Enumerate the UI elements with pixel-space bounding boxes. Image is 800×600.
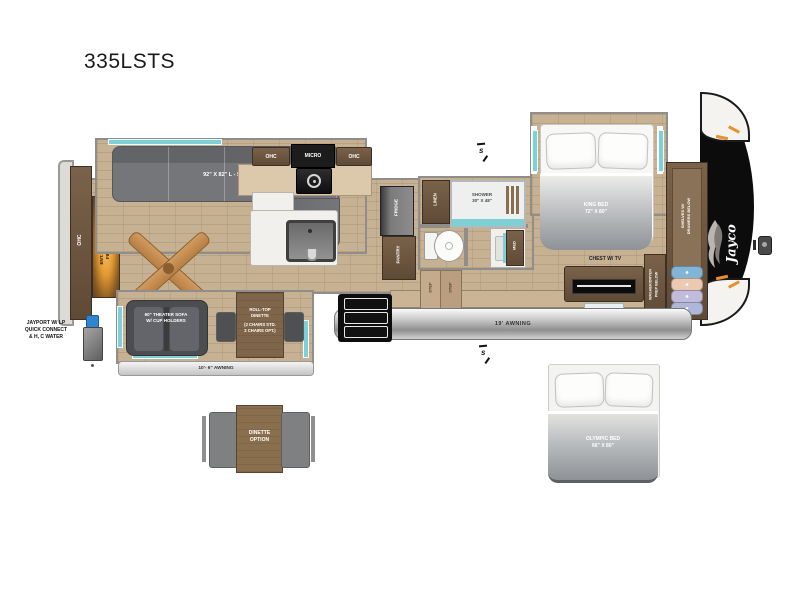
step-label-1: STEP [428,271,433,305]
floorplan-title: 335LSTS [84,50,175,74]
dinette-opt-rail-left [202,416,206,462]
king-line2: 72" X 80" [540,209,652,216]
shower-slat-1 [516,186,519,214]
speaker-symbol-top: s [479,146,483,155]
fridge-label: FRIDGE [394,186,399,230]
tv-icon [572,279,636,294]
dinette-opt-line1: DINETTE [237,430,282,437]
rear-ohc-label: OHC [77,210,83,270]
dinette-opt-bench-left [209,412,238,468]
king-line1: KING BED [540,202,652,209]
dinette-chair-left [216,312,236,342]
dinette-opt-rail-right [311,416,315,462]
floorplan-canvas: 335LSTS OHC ENT. CENTER W/ FIREPLACE 92"… [0,0,800,600]
table-hub [163,263,174,274]
burner-icon [307,174,321,188]
med-label: MED [512,232,517,260]
shelves-label: SHELVES W/ DRAWERS BELOW [680,172,692,260]
jayport-label: JAYPORT W/ LP QUICK CONNECT & H, C WATER [10,320,82,341]
hitch-icon [758,236,772,255]
shelves-line2: DRAWERS BELOW [686,172,692,260]
burner-center [313,180,316,183]
front-cap-top [700,92,750,142]
living-slide-window [108,139,222,145]
sink-icon [286,220,336,262]
toilet-icon [434,230,464,262]
pantry-label: PANTRY [396,233,401,277]
micro-label: MICRO [305,153,322,159]
dinette-chair-right [284,312,304,342]
step-label-2: STEP [448,271,453,305]
microwave: MICRO [291,144,335,168]
faucet-icon [306,249,318,261]
shower-line2: 30" X 48" [454,198,510,204]
ohc-left-label: OHC [265,154,276,160]
dinette-opt-bench-right [281,412,310,468]
king-pillow-left [545,132,596,170]
theater-sofa-label: 60" THEATER SOFA W/ CUP HOLDERS [120,312,212,324]
kitchen-ohc-left: OHC [252,147,290,166]
toilet-room-wall [464,228,468,266]
olympic-pillow-left [554,372,604,408]
dinette-option-label: DINETTE OPTION [237,430,282,444]
theater-line2: W/ CUP HOLDERS [120,318,212,324]
king-pillow-right [597,132,648,170]
bed-window-right [658,130,664,172]
jayport-line2: QUICK CONNECT [10,327,82,334]
olympic-blanket: OLYMPIC BED 66" X 80" [548,411,658,483]
entry-step-1 [344,298,388,310]
rolltop-dinette-table: ROLL-TOP DINETTE (2 CHAIRS STD. 2 CHAIRS… [236,292,284,358]
rolltop-line4: 2 CHAIRS OPT.) [237,328,283,334]
hitch-post [753,240,756,250]
chest-label: CHEST W/ TV [558,256,652,262]
olympic-line2: 66" X 80" [548,443,658,450]
dinette-option-table: DINETTE OPTION [236,405,283,473]
bed-window-left [532,130,538,172]
chest-with-tv [564,266,644,302]
hitch-pin [762,242,767,247]
toilet-flush [445,242,453,250]
entry-step-2 [344,312,388,324]
speaker-symbol-bottom: s [481,348,485,357]
shower-slat-2 [511,186,514,214]
shower-threshold [452,219,524,226]
entry-step-3 [344,326,388,338]
tv-screen-glint [577,285,631,287]
shower-label: SHOWER 30" X 48" [454,192,510,204]
jayco-logo: Jayco [725,212,740,276]
shower: SHOWER 30" X 48" [450,180,526,228]
dinette-opt-line2: OPTION [237,437,282,444]
jayport-drain [91,364,94,367]
drain-icon [308,229,312,233]
king-bed: KING BED 72" X 80" [540,124,654,248]
entry-steps [338,294,392,342]
cooktop-icon [296,168,332,194]
jayport-box [83,327,103,361]
olympic-bed: OLYMPIC BED 66" X 80" [548,364,660,478]
main-awning-label: 19' AWNING [495,321,531,327]
jayport-line1: JAYPORT W/ LP [10,320,82,327]
rolltop-label: ROLL-TOP DINETTE (2 CHAIRS STD. 2 CHAIRS… [237,307,283,334]
jayport-line3: & H, C WATER [10,334,82,341]
olympic-bed-label: OLYMPIC BED 66" X 80" [548,436,658,450]
king-blanket: KING BED 72" X 80" [540,173,652,250]
king-bed-label: KING BED 72" X 80" [540,202,652,216]
small-awning: 10'- 6" AWNING [118,361,314,376]
olympic-pillow-right [604,372,653,408]
olympic-line1: OLYMPIC BED [548,436,658,443]
linen-label: LINEN [433,180,438,220]
kitchen-ohc-right: OHC [336,147,372,166]
theater-sofa [126,300,208,356]
small-awning-label: 10'- 6" AWNING [198,366,233,371]
rolltop-line2: DINETTE [237,313,283,319]
ohc-right-label: OHC [348,154,359,160]
